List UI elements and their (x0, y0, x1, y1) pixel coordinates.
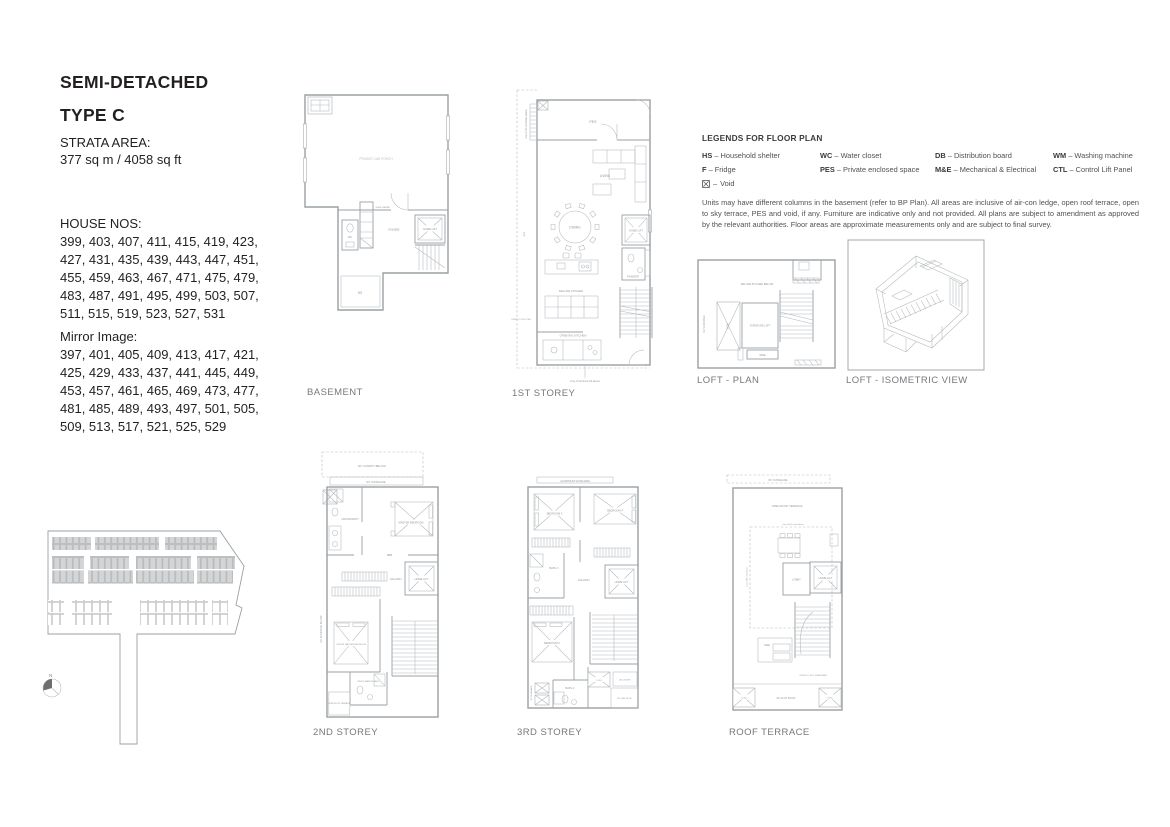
second-hallway-wardrobe: HALLWAY (332, 572, 402, 596)
third-bedroom4: BEDROOM 4 (594, 494, 636, 524)
roof-stairs: OPEN TO SKY STAIRCASE (795, 602, 830, 677)
house-nos-list: 399, 403, 407, 411, 415, 419, 423, 427, … (60, 233, 259, 323)
roof-mne: M&E (758, 638, 792, 662)
second-storey-plan-title: 2ND STOREY (313, 727, 378, 738)
svg-text:OPEN ROOF TERRACE: OPEN ROOF TERRACE (772, 504, 803, 508)
first-oriental-kitchen: ORIENTAL KITCHEN OPEN TO SKY PES (511, 319, 601, 360)
basement-outline (305, 95, 448, 310)
svg-text:DELUXE KITCHEN BELOW: DELUXE KITCHEN BELOW (741, 282, 774, 286)
svg-text:RC FLAT ROOF: RC FLAT ROOF (777, 696, 796, 700)
loft-isometric-title: LOFT - ISOMETRIC VIEW (846, 375, 968, 386)
site-key-plan: N (28, 518, 263, 748)
svg-text:MASTER BATH: MASTER BATH (342, 518, 359, 521)
svg-text:HOME LIFT: HOME LIFT (423, 227, 437, 231)
legend-item: CTL – Control Lift Panel (1053, 165, 1139, 174)
legend-title: LEGENDS FOR FLOOR PLAN (702, 133, 1139, 143)
third-bath3: BATH 3 (528, 553, 564, 598)
first-deluxe-kitchen: DELUXE KITCHEN (545, 253, 598, 318)
svg-text:OPEN ROOF TERRACE: OPEN ROOF TERRACE (328, 702, 351, 705)
sheet-title-line2: TYPE C (60, 105, 125, 126)
first-storey-plan-title: 1ST STOREY (512, 388, 575, 399)
basement-floor-plan: PRIVATE CAR PORCH WC SHOE CABINET FOYER … (296, 86, 466, 386)
house-nos-label: HOUSE NOS: (60, 215, 142, 232)
roof-terrace-plan-title: ROOF TERRACE (729, 727, 810, 738)
strata-area-value: 377 sq m / 4058 sq ft (60, 151, 181, 168)
svg-text:BATH 2: BATH 2 (566, 686, 575, 690)
legend-item: HS – Household shelter (702, 151, 820, 160)
svg-text:BATH 3: BATH 3 (550, 566, 559, 570)
svg-text:HOME LIFT: HOME LIFT (415, 577, 429, 581)
legend-item: F – Fridge (702, 165, 820, 174)
first-pes: Line of RC sunshade above PES (525, 100, 650, 140)
roof-terrace-floor-plan: RC SUNSHADE OPEN ROOF TERRACE Line of RC… (713, 462, 862, 747)
second-master-bedroom: MASTER BEDROOM (387, 502, 438, 555)
svg-text:N: N (49, 673, 52, 678)
iso-drawing (876, 256, 968, 352)
site-units-plain (48, 600, 228, 625)
mirror-image-list: 397, 401, 405, 409, 413, 417, 421, 425, … (60, 346, 259, 436)
basement-plan-title: BASEMENT (307, 387, 363, 398)
legend-item: WC – Water closet (820, 151, 935, 160)
svg-text:DELUXE KITCHEN: DELUXE KITCHEN (559, 289, 583, 293)
legend-item: PES – Private enclosed space (820, 165, 935, 174)
svg-text:Line of RC roof above: Line of RC roof above (747, 566, 749, 586)
svg-text:ALUMINIUM SUNSHADE: ALUMINIUM SUNSHADE (560, 479, 590, 483)
legend-disclaimer: Units may have different columns in the … (702, 197, 1139, 230)
svg-text:HOME LIFT: HOME LIFT (629, 229, 643, 233)
svg-text:FURNITURE LOFT: FURNITURE LOFT (750, 325, 771, 328)
svg-text:BEDROOM 3: BEDROOM 3 (547, 512, 563, 516)
legend-item: M&E – Mechanical & Electrical (935, 165, 1053, 174)
third-storey-floor-plan: ALUMINIUM SUNSHADE BEDROOM 3 BEDROOM 4 (508, 462, 655, 747)
svg-text:OPEN TO SKY STAIRCASE: OPEN TO SKY STAIRCASE (799, 674, 827, 677)
svg-text:RC FLAT ROOF: RC FLAT ROOF (617, 697, 632, 700)
svg-text:VOID: VOID (827, 698, 833, 700)
svg-text:FOYER: FOYER (389, 228, 401, 232)
strata-area-label: STRATA AREA: (60, 134, 151, 151)
second-home-lift: HOME LIFT (405, 562, 438, 595)
svg-text:RC CANOPY BELOW: RC CANOPY BELOW (358, 464, 386, 468)
legend-void-item: – Void (702, 179, 1139, 188)
first-home-lift: HOME LIFT (622, 215, 650, 245)
svg-text:Line of RC roof above: Line of RC roof above (782, 523, 804, 526)
svg-text:PES: PES (589, 120, 597, 124)
first-stairs (620, 287, 652, 365)
svg-text:HS: HS (358, 291, 362, 295)
svg-text:JUNIOR MASTER BEDROOM: JUNIOR MASTER BEDROOM (336, 643, 366, 646)
svg-text:RC SUNSHADE: RC SUNSHADE (530, 685, 533, 700)
sheet-title-line1: SEMI-DETACHED (60, 72, 208, 93)
svg-text:HOME LIFT: HOME LIFT (819, 576, 833, 580)
loft-isometric-view (846, 234, 988, 374)
third-bedroom3: BEDROOM 3 (534, 494, 574, 530)
third-bedroom2: BEDROOM 2 (532, 617, 574, 680)
second-junior-master: JUNIOR MASTER BEDROOM (327, 599, 380, 672)
legend-item: DB – Distribution board (935, 151, 1053, 160)
svg-text:VOID: VOID (741, 698, 747, 700)
basement-car-porch: PRIVATE CAR PORCH (303, 97, 449, 182)
void-icon (702, 180, 710, 188)
svg-text:WINE: WINE (759, 354, 766, 357)
basement-interior: WC SHOE CABINET FOYER HOME LIFT HS (338, 193, 448, 307)
svg-text:RC SUNSHADE: RC SUNSHADE (769, 478, 788, 482)
svg-text:VOID: VOID (596, 680, 602, 682)
svg-text:WC: WC (348, 235, 352, 239)
svg-text:BEDROOM 2: BEDROOM 2 (544, 641, 560, 645)
svg-text:Line of RC sunshade above: Line of RC sunshade above (525, 109, 528, 139)
loft-plan-title: LOFT - PLAN (697, 375, 759, 386)
second-storey-floor-plan: RC CANOPY BELOW RC SUNSHADE MASTER BATH (308, 444, 450, 744)
third-home-lift: HOME LIFT (605, 565, 638, 598)
second-junior-bath: JUNIOR MASTER BATH (350, 672, 387, 705)
first-powder: POWDER (622, 248, 650, 280)
svg-text:M&E: M&E (764, 643, 770, 647)
roof-lobby: LOBBY (783, 563, 810, 595)
first-storey-floor-plan: Line of RC sunshade above PES LIVING DIN… (505, 84, 665, 399)
svg-text:LIVING: LIVING (600, 174, 611, 178)
svg-text:SHOE CABINET: SHOE CABINET (376, 206, 392, 209)
svg-text:HALLWAY: HALLWAY (578, 578, 590, 582)
third-outline (528, 487, 638, 708)
svg-text:RC SUNSHADE: RC SUNSHADE (703, 315, 706, 333)
floorplan-sheet: SEMI-DETACHED TYPE C STRATA AREA: 377 sq… (0, 0, 1170, 827)
svg-text:HALLWAY: HALLWAY (390, 577, 402, 581)
first-dining: DINING (551, 203, 599, 250)
third-stairs (590, 612, 638, 664)
legend-grid: HS – Household shelter WC – Water closet… (702, 151, 1139, 174)
svg-text:AC LEDGE: AC LEDGE (619, 679, 631, 682)
legend-item: WM – Washing machine (1053, 151, 1139, 160)
svg-text:JUNIOR MASTER BATH: JUNIOR MASTER BATH (357, 680, 380, 683)
svg-text:Line of furniture loft above: Line of furniture loft above (570, 379, 601, 383)
second-stairs (392, 616, 438, 676)
svg-text:PES: PES (524, 231, 526, 236)
loft-interior: DELUXE KITCHEN BELOW VOID FURNITURE LOFT… (703, 260, 821, 365)
legend: LEGENDS FOR FLOOR PLAN HS – Household sh… (702, 133, 1139, 230)
north-arrow-icon: N (43, 673, 61, 697)
svg-text:VOID: VOID (727, 323, 730, 329)
svg-text:RC SUNSHADE BELOW: RC SUNSHADE BELOW (320, 615, 323, 642)
svg-text:LOBBY: LOBBY (792, 578, 801, 582)
svg-text:DINING: DINING (569, 226, 581, 230)
svg-text:OPEN TO SKY PES: OPEN TO SKY PES (511, 319, 531, 321)
roof-bottom: VOID RC FLAT ROOF VOID (733, 684, 842, 707)
third-bottom: RC SUNSHADE BATH 2 VOID AC LEDGE RC FLAT… (530, 667, 638, 708)
roof-home-lift: HOME LIFT (810, 562, 841, 593)
site-units-shaded (52, 537, 235, 584)
loft-floor-plan: DELUXE KITCHEN BELOW VOID FURNITURE LOFT… (696, 246, 842, 372)
svg-text:HOME LIFT: HOME LIFT (615, 580, 629, 584)
svg-text:ORIENTAL KITCHEN: ORIENTAL KITCHEN (560, 334, 587, 338)
second-terrace: OPEN ROOF TERRACE (328, 692, 351, 715)
svg-text:POWDER: POWDER (627, 275, 639, 279)
svg-text:RC SUNSHADE: RC SUNSHADE (367, 480, 386, 484)
svg-text:MASTER BEDROOM: MASTER BEDROOM (399, 521, 424, 525)
mirror-image-label: Mirror Image: (60, 328, 137, 345)
third-storey-plan-title: 3RD STOREY (517, 727, 582, 738)
svg-text:PRIVATE CAR PORCH: PRIVATE CAR PORCH (359, 157, 393, 161)
svg-text:BEDROOM 4: BEDROOM 4 (607, 509, 623, 513)
